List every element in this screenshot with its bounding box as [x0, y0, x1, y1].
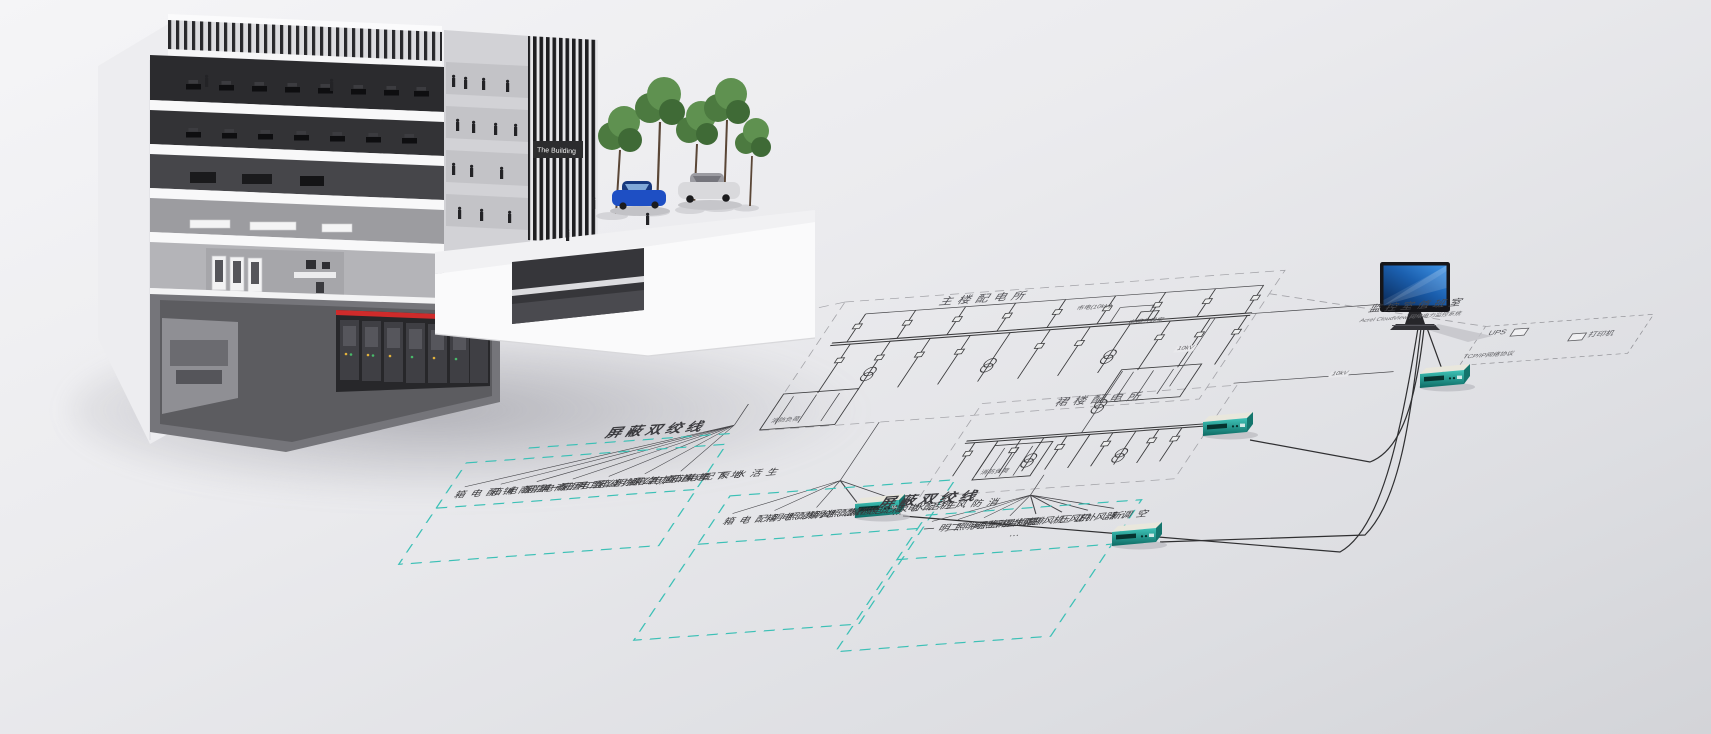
comm-gateway-device-2 — [1111, 522, 1167, 550]
podium-feeders — [953, 428, 1182, 476]
silver-car — [678, 173, 742, 210]
main-busbar — [830, 313, 1252, 346]
cable-to-device-2 — [1160, 328, 1421, 542]
building-sign-text: The Building — [537, 147, 576, 155]
outgoing-feeders — [818, 315, 1248, 393]
blue-car — [610, 181, 670, 216]
control-desk — [294, 272, 336, 278]
cable-to-device-3 — [1250, 328, 1424, 462]
monitor-shadow — [1428, 324, 1492, 342]
cable-to-device-4 — [1427, 328, 1443, 372]
building-illustration: The Building — [0, 0, 880, 520]
slat-wall — [528, 36, 598, 244]
trunk-lines — [1169, 300, 1442, 388]
collector-line — [866, 285, 1264, 314]
comm-gateway-device-3 — [1202, 412, 1258, 440]
scene: The Building — [0, 0, 1711, 734]
office-chair — [316, 282, 324, 293]
control-monitor — [306, 260, 316, 269]
comm-gateway-device-4 — [1419, 364, 1475, 392]
monitor-base — [1390, 324, 1440, 330]
